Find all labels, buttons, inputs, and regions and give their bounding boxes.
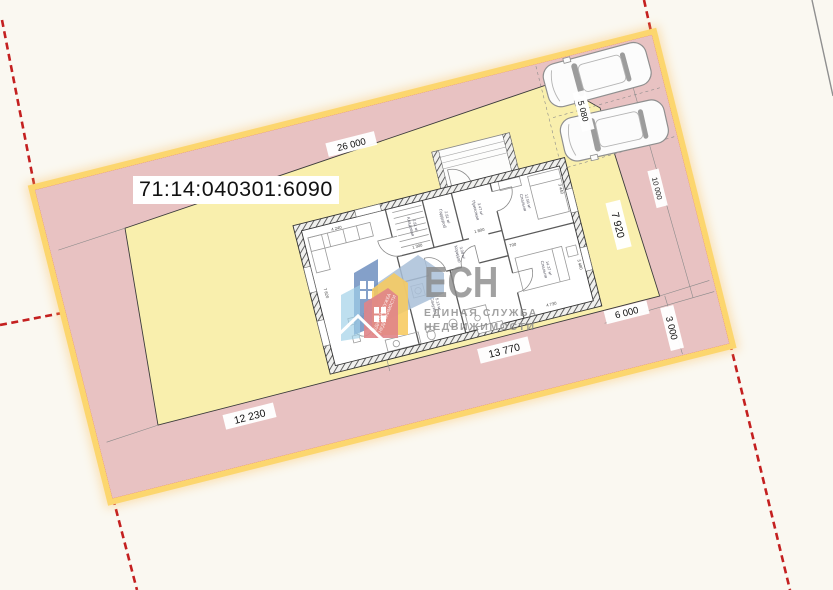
boundary-dash-left xyxy=(0,313,62,325)
boundary-dash-bottom xyxy=(113,498,137,590)
site-plan-canvas[interactable]: Кладовая 2.81 м² Гардероб 2.81 м² Прихож… xyxy=(0,0,833,590)
boundary-dash-bottom-right xyxy=(730,343,790,590)
cadastral-number-label: 71:14:040301:6090 xyxy=(133,176,339,204)
neighbour-boundary-line xyxy=(812,0,833,96)
boundary-dash-top-left xyxy=(2,20,35,189)
boundary-dash-top-right xyxy=(644,0,652,36)
